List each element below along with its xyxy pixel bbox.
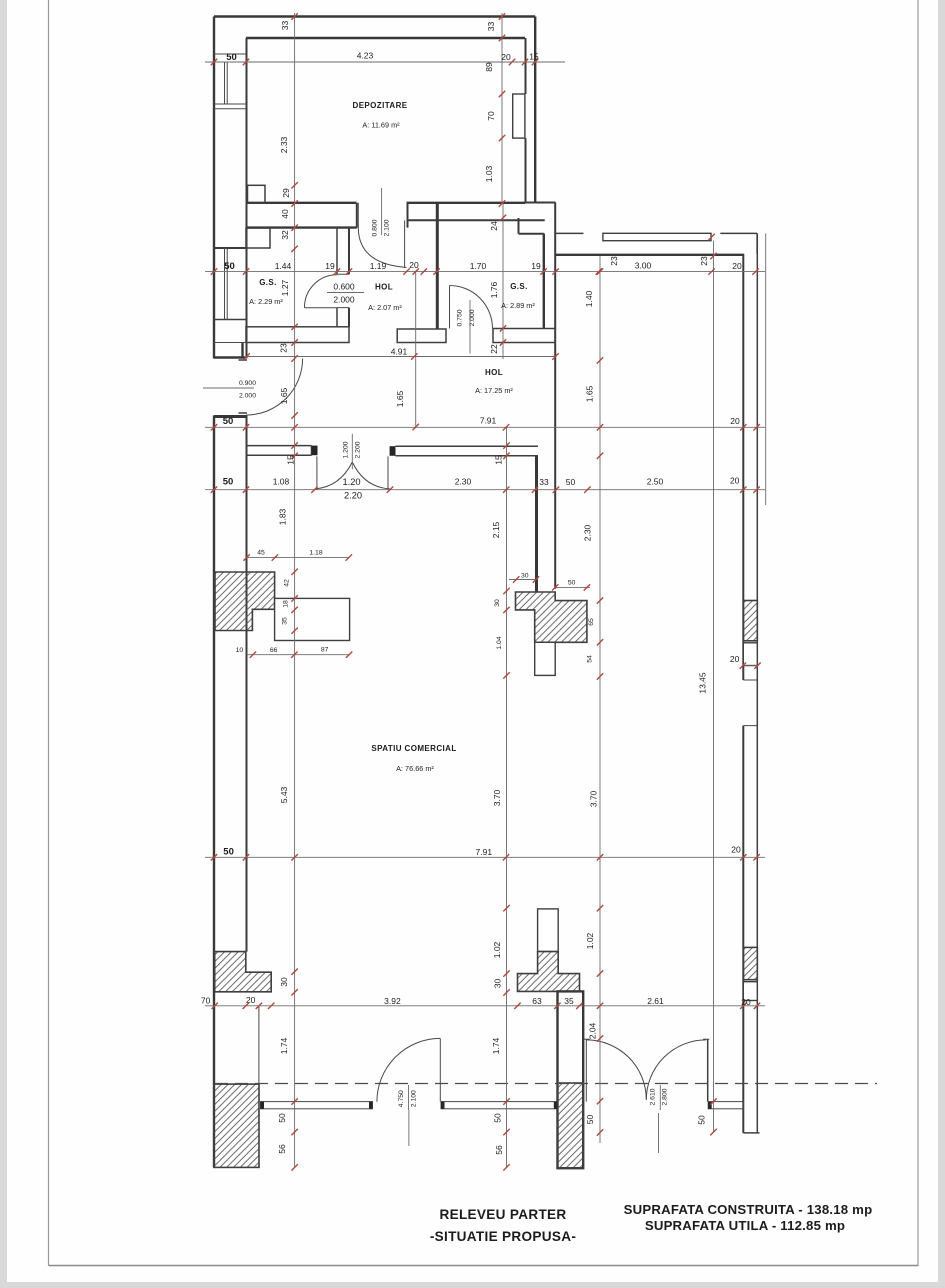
svg-text:DEPOZITARE: DEPOZITARE bbox=[353, 101, 408, 110]
svg-text:50: 50 bbox=[223, 847, 234, 858]
svg-text:30: 30 bbox=[493, 979, 503, 989]
svg-text:2.15: 2.15 bbox=[491, 521, 501, 538]
svg-text:70: 70 bbox=[486, 111, 496, 121]
svg-text:1.70: 1.70 bbox=[470, 261, 487, 271]
svg-text:23: 23 bbox=[278, 343, 288, 353]
svg-text:1.44: 1.44 bbox=[275, 261, 292, 271]
svg-text:1.83: 1.83 bbox=[278, 508, 288, 525]
svg-text:SUPRAFATA UTILA - 112.85 mp: SUPRAFATA UTILA - 112.85 mp bbox=[645, 1218, 845, 1233]
svg-text:2.000: 2.000 bbox=[239, 393, 256, 400]
svg-text:2.20: 2.20 bbox=[344, 491, 362, 501]
svg-text:A: 2.89 m²: A: 2.89 m² bbox=[501, 301, 535, 310]
svg-text:33: 33 bbox=[486, 22, 496, 32]
svg-text:50: 50 bbox=[277, 1113, 287, 1123]
svg-text:89: 89 bbox=[484, 62, 494, 72]
svg-text:1.02: 1.02 bbox=[492, 941, 502, 958]
svg-text:66: 66 bbox=[270, 647, 278, 654]
svg-text:23: 23 bbox=[609, 256, 619, 266]
svg-text:3.70: 3.70 bbox=[492, 789, 502, 806]
svg-text:20: 20 bbox=[730, 654, 740, 664]
svg-text:65: 65 bbox=[588, 618, 595, 626]
svg-text:1.03: 1.03 bbox=[484, 165, 494, 182]
svg-text:3.00: 3.00 bbox=[635, 261, 652, 271]
svg-text:20: 20 bbox=[409, 260, 419, 270]
svg-text:1.18: 1.18 bbox=[309, 550, 322, 557]
svg-text:3.92: 3.92 bbox=[384, 996, 401, 1006]
svg-text:0.900: 0.900 bbox=[239, 380, 256, 387]
svg-text:A: 2.07 m²: A: 2.07 m² bbox=[368, 303, 402, 312]
svg-text:2.200: 2.200 bbox=[355, 441, 362, 458]
svg-text:SUPRAFATA CONSTRUITA - 138.18: SUPRAFATA CONSTRUITA - 138.18 mp bbox=[624, 1202, 873, 1217]
svg-text:10: 10 bbox=[236, 647, 244, 654]
svg-text:50: 50 bbox=[226, 52, 237, 63]
svg-text:29: 29 bbox=[281, 188, 291, 198]
svg-text:-SITUATIE PROPUSA-: -SITUATIE PROPUSA- bbox=[430, 1229, 576, 1244]
svg-text:2.000: 2.000 bbox=[469, 309, 476, 326]
svg-text:1.04: 1.04 bbox=[496, 636, 503, 649]
svg-text:2.04: 2.04 bbox=[588, 1022, 598, 1039]
svg-text:A: 17.25 m²: A: 17.25 m² bbox=[475, 386, 513, 395]
svg-text:A: 76.66 m²: A: 76.66 m² bbox=[396, 764, 434, 773]
svg-text:50: 50 bbox=[566, 477, 576, 487]
svg-text:20: 20 bbox=[730, 476, 740, 486]
svg-text:19: 19 bbox=[325, 261, 335, 271]
svg-text:2.100: 2.100 bbox=[384, 219, 391, 236]
svg-text:50: 50 bbox=[697, 1115, 707, 1125]
svg-text:20: 20 bbox=[501, 52, 511, 62]
svg-text:18: 18 bbox=[283, 600, 290, 608]
svg-text:1.27: 1.27 bbox=[280, 279, 290, 296]
svg-text:15: 15 bbox=[494, 455, 504, 465]
svg-text:1.65: 1.65 bbox=[279, 387, 289, 404]
svg-text:1.40: 1.40 bbox=[584, 290, 594, 307]
svg-text:63: 63 bbox=[532, 996, 542, 1006]
svg-text:30: 30 bbox=[521, 573, 529, 580]
svg-text:50: 50 bbox=[585, 1115, 595, 1125]
svg-text:0.750: 0.750 bbox=[457, 309, 464, 326]
svg-text:30: 30 bbox=[494, 599, 501, 607]
svg-text:54: 54 bbox=[587, 655, 594, 663]
svg-text:7.91: 7.91 bbox=[476, 847, 493, 857]
svg-text:50: 50 bbox=[568, 580, 576, 587]
svg-text:20: 20 bbox=[741, 997, 751, 1007]
svg-text:13.45: 13.45 bbox=[698, 672, 708, 694]
svg-text:30: 30 bbox=[279, 977, 289, 987]
svg-text:1.08: 1.08 bbox=[273, 477, 290, 487]
svg-text:4.750: 4.750 bbox=[398, 1090, 405, 1107]
svg-text:24: 24 bbox=[489, 221, 499, 231]
svg-text:HOL: HOL bbox=[485, 368, 503, 377]
svg-text:RELEVEU PARTER: RELEVEU PARTER bbox=[439, 1207, 566, 1222]
svg-text:2.30: 2.30 bbox=[455, 477, 472, 487]
svg-text:4.23: 4.23 bbox=[357, 51, 374, 61]
svg-text:G.S.: G.S. bbox=[510, 282, 528, 291]
svg-text:32: 32 bbox=[280, 230, 290, 240]
svg-text:5.43: 5.43 bbox=[279, 786, 289, 803]
svg-text:HOL: HOL bbox=[375, 283, 393, 292]
svg-text:1.65: 1.65 bbox=[395, 390, 405, 407]
svg-text:1.74: 1.74 bbox=[279, 1037, 289, 1054]
svg-text:1.74: 1.74 bbox=[491, 1037, 501, 1054]
svg-text:1.20: 1.20 bbox=[342, 477, 360, 487]
svg-text:50: 50 bbox=[493, 1113, 503, 1123]
svg-text:4.91: 4.91 bbox=[391, 347, 408, 357]
svg-text:87: 87 bbox=[321, 647, 329, 654]
svg-text:1.200: 1.200 bbox=[343, 441, 350, 458]
svg-text:3.70: 3.70 bbox=[589, 790, 599, 807]
svg-text:50: 50 bbox=[223, 477, 234, 488]
svg-text:2.61: 2.61 bbox=[647, 996, 664, 1006]
svg-text:22: 22 bbox=[489, 344, 499, 354]
svg-text:0.600: 0.600 bbox=[333, 282, 355, 292]
svg-text:2.100: 2.100 bbox=[411, 1090, 418, 1107]
svg-text:19: 19 bbox=[531, 261, 541, 271]
svg-text:1.19: 1.19 bbox=[370, 261, 387, 271]
svg-text:42: 42 bbox=[284, 579, 291, 587]
svg-text:15: 15 bbox=[529, 52, 539, 62]
svg-text:35: 35 bbox=[564, 996, 574, 1006]
svg-text:20: 20 bbox=[732, 261, 742, 271]
svg-text:G.S.: G.S. bbox=[259, 278, 277, 287]
svg-text:A: 2.29 m²: A: 2.29 m² bbox=[249, 297, 283, 306]
svg-text:20: 20 bbox=[731, 845, 741, 855]
svg-text:7.91: 7.91 bbox=[480, 416, 497, 426]
svg-text:1.76: 1.76 bbox=[489, 281, 499, 298]
svg-text:45: 45 bbox=[257, 550, 265, 557]
svg-text:40: 40 bbox=[280, 209, 290, 219]
svg-text:1.65: 1.65 bbox=[585, 385, 595, 402]
svg-text:20: 20 bbox=[246, 995, 256, 1005]
svg-text:1.02: 1.02 bbox=[585, 932, 595, 949]
svg-text:20: 20 bbox=[730, 416, 740, 426]
svg-text:0.800: 0.800 bbox=[372, 219, 379, 236]
svg-text:2.610: 2.610 bbox=[650, 1088, 657, 1105]
svg-text:33: 33 bbox=[280, 21, 290, 31]
svg-text:56: 56 bbox=[494, 1145, 504, 1155]
svg-text:A: 11.69 m²: A: 11.69 m² bbox=[362, 121, 400, 130]
svg-text:56: 56 bbox=[277, 1144, 287, 1154]
svg-text:50: 50 bbox=[223, 416, 234, 427]
svg-text:33: 33 bbox=[539, 477, 549, 487]
svg-text:70: 70 bbox=[201, 996, 211, 1006]
svg-text:2.800: 2.800 bbox=[662, 1088, 669, 1105]
svg-text:2.33: 2.33 bbox=[279, 136, 289, 153]
svg-text:SPATIU COMERCIAL: SPATIU COMERCIAL bbox=[371, 744, 456, 753]
svg-text:15: 15 bbox=[286, 455, 296, 465]
svg-text:35: 35 bbox=[282, 617, 289, 625]
svg-text:2.50: 2.50 bbox=[647, 477, 664, 487]
svg-text:23: 23 bbox=[699, 256, 709, 266]
svg-text:2.30: 2.30 bbox=[583, 524, 593, 541]
svg-text:50: 50 bbox=[224, 261, 235, 272]
svg-text:2.000: 2.000 bbox=[333, 295, 355, 305]
